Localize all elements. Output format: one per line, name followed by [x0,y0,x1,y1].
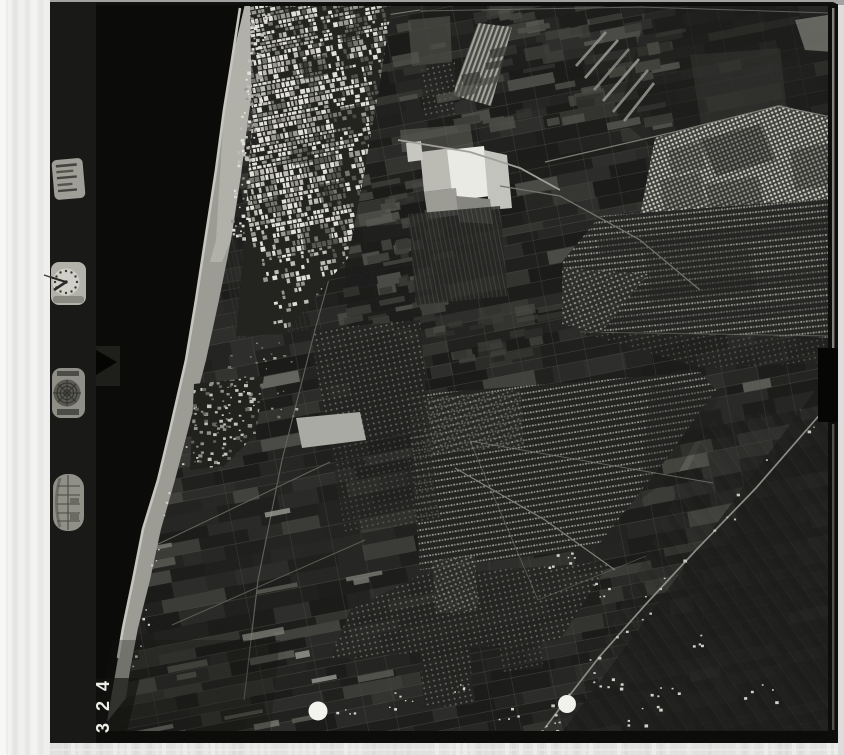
svg-text:4: 4 [93,681,113,691]
svg-text:3: 3 [93,723,113,733]
svg-text:2: 2 [93,701,113,711]
